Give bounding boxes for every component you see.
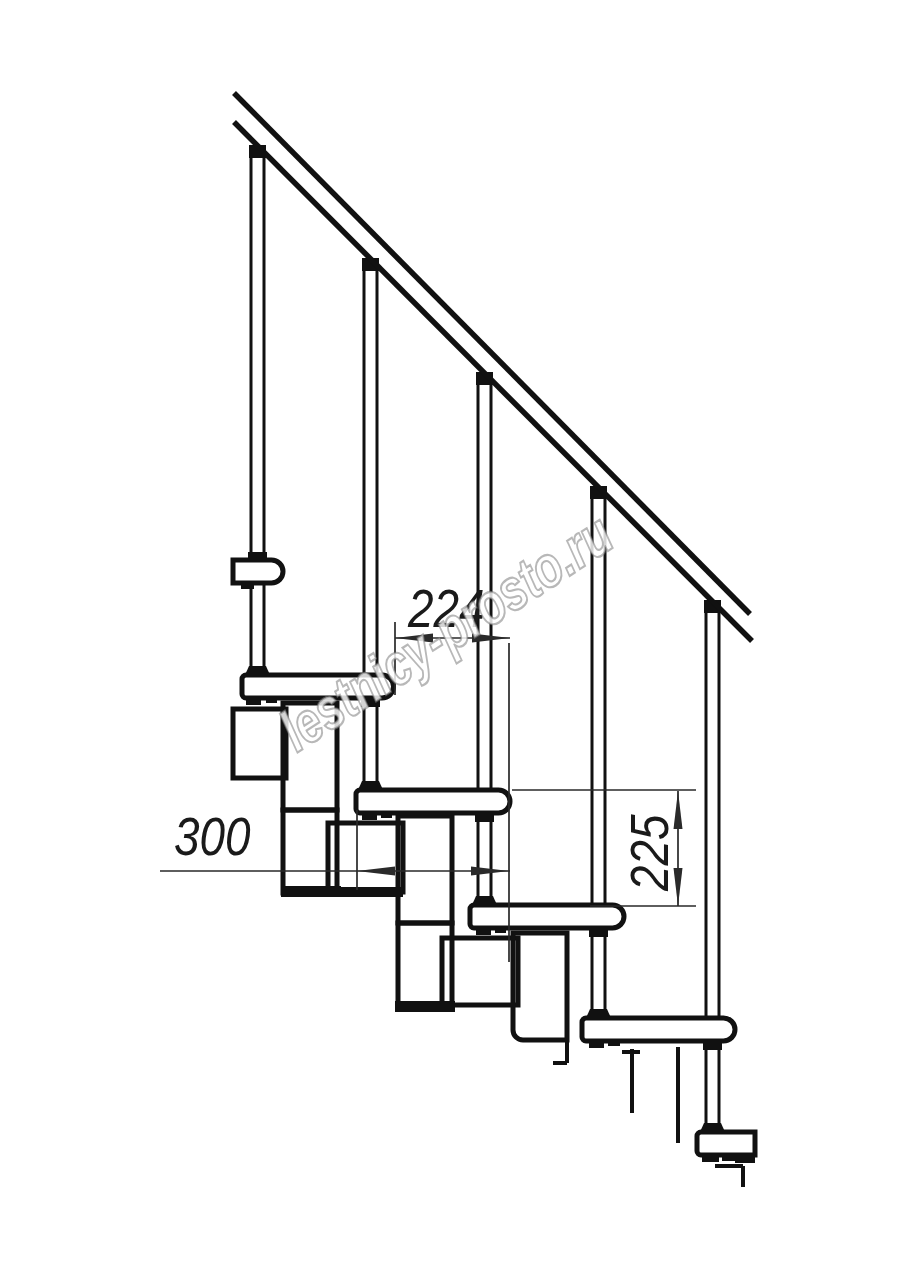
baluster-1 xyxy=(251,150,264,677)
break-lines xyxy=(553,1040,743,1187)
module-box xyxy=(513,933,567,1040)
tread-3 xyxy=(470,905,624,928)
tread-5 xyxy=(697,1132,755,1155)
watermark-text: lestnicy-prosto.ru xyxy=(268,501,624,763)
dimension-225-label: 225 xyxy=(620,814,680,892)
baluster-fittings xyxy=(241,145,755,1163)
baluster-5 xyxy=(706,605,719,1132)
staircase-drawing: 224 300 225 lestnicy-prosto.ru xyxy=(0,0,914,1280)
tread-2 xyxy=(356,790,510,813)
module-box xyxy=(398,816,452,923)
handrail xyxy=(234,93,752,641)
tread-4 xyxy=(582,1018,735,1041)
dimension-300-label: 300 xyxy=(174,807,251,867)
drawing-page: 224 300 225 lestnicy-prosto.ru xyxy=(0,0,914,1280)
tread-top-bracket xyxy=(233,560,283,583)
